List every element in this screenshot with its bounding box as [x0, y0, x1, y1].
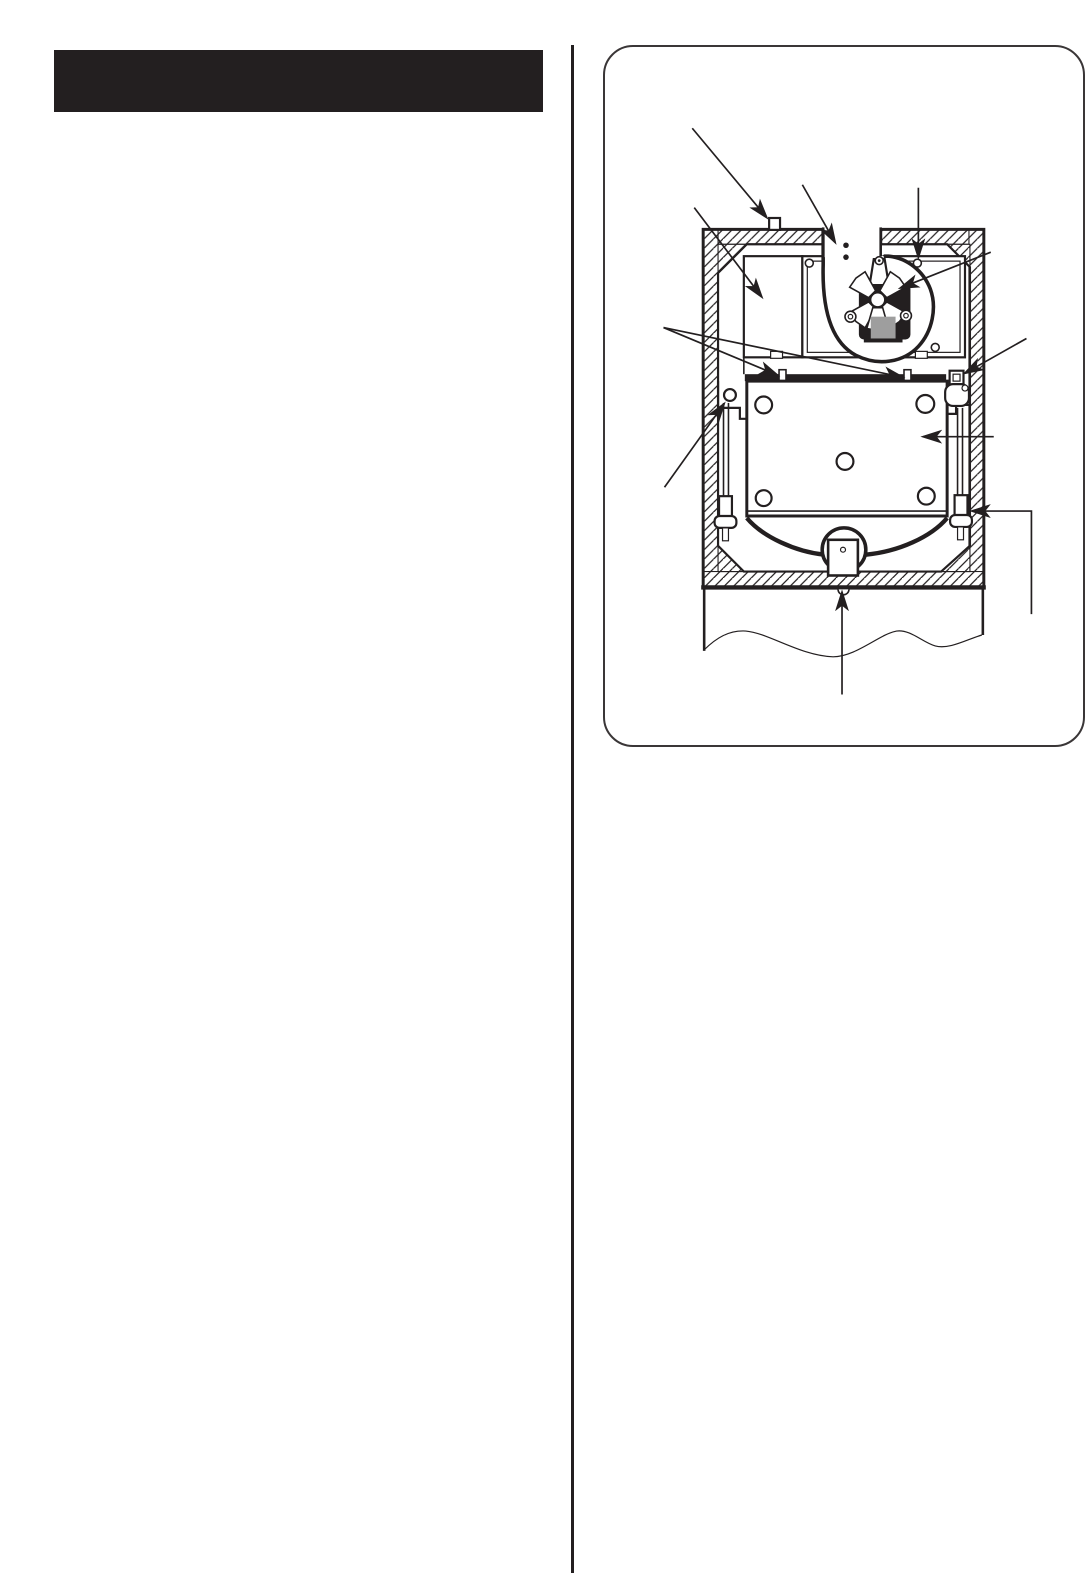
callout-arrow-cap	[692, 128, 766, 217]
motor-capacitor	[871, 317, 896, 339]
panel-tab	[915, 351, 927, 358]
plate-hole	[916, 395, 934, 413]
chute-dot	[843, 242, 849, 248]
right-clamp	[955, 495, 968, 516]
plate-hole	[837, 453, 854, 470]
condensate-funnel	[747, 518, 947, 576]
manual-page	[0, 0, 1088, 1575]
fan-hub	[870, 292, 885, 307]
plate-hole	[755, 396, 772, 413]
furnace-diagram	[605, 47, 1083, 745]
chute-dot	[843, 254, 849, 260]
column-divider	[571, 45, 574, 1573]
control-box	[744, 256, 803, 357]
drain-outlet	[838, 589, 849, 594]
figure-box	[603, 45, 1085, 747]
plate-hole	[756, 490, 772, 506]
access-plate	[747, 381, 947, 516]
valve-fitting	[945, 371, 969, 406]
cabinet-base	[704, 589, 983, 656]
left-grommet	[724, 389, 736, 401]
section-title-bar	[54, 50, 543, 112]
top-panel-cap	[769, 218, 780, 230]
panel-screw-top-right	[913, 259, 921, 267]
drain-box	[828, 540, 858, 576]
right-wing-nut	[950, 515, 972, 527]
left-wing-nut	[715, 516, 737, 528]
break-wavy-line	[704, 631, 982, 657]
plate-hole	[918, 488, 935, 505]
